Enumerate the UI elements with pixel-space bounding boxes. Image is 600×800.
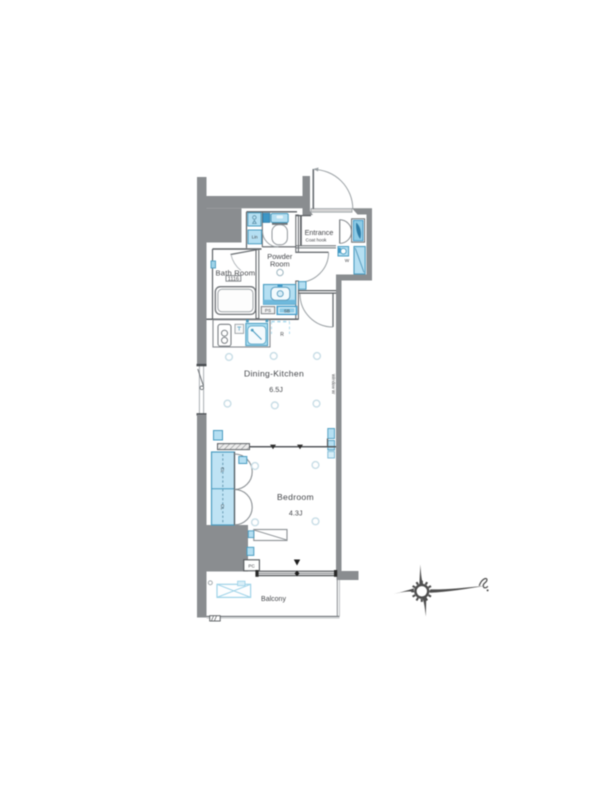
svg-text:1116: 1116 [228,276,239,282]
svg-text:Dining-Kitchen: Dining-Kitchen [244,369,304,379]
svg-text:SB: SB [284,309,290,314]
svg-text:Coat hook: Coat hook [306,237,328,242]
svg-text:CL: CL [220,504,225,510]
svg-text:CL: CL [220,467,225,473]
svg-text:6.5J: 6.5J [269,385,283,394]
svg-text:Room: Room [270,259,290,268]
svg-text:Lin: Lin [252,235,258,240]
svg-text:PC: PC [248,563,255,568]
svg-text:Balcony: Balcony [261,596,286,603]
svg-text:PS: PS [265,308,271,313]
svg-text:4.3J: 4.3J [289,508,303,517]
svg-text:Window W: Window W [331,374,336,394]
svg-text:Entrance: Entrance [305,228,334,237]
svg-text:R: R [280,332,284,338]
svg-text:Bedroom: Bedroom [277,492,314,502]
svg-text:W: W [345,258,350,263]
